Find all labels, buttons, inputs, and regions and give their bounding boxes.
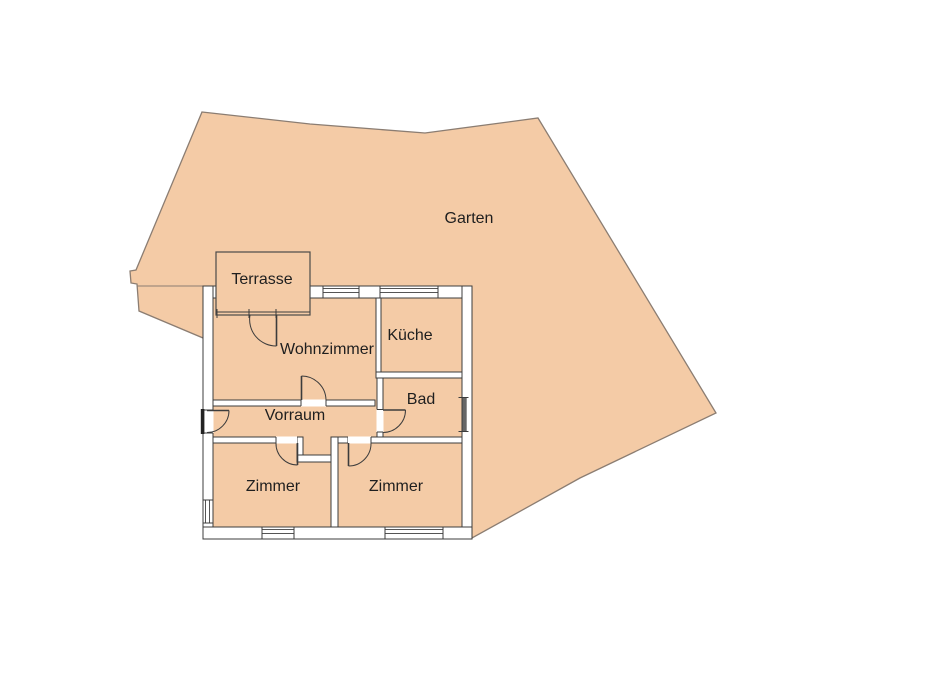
wall-hall-south-c xyxy=(371,437,462,443)
wall-kitchen-west xyxy=(376,298,381,375)
door-opening xyxy=(276,436,297,443)
floorplan-svg: Garten Terrasse Wohnzimmer Küche Bad Vor… xyxy=(0,0,940,677)
wall-kitchen-south xyxy=(376,372,462,378)
garden-label: Garten xyxy=(445,210,494,227)
door-opening xyxy=(376,410,383,433)
wall-rooms-partition xyxy=(331,437,338,527)
room-right-label: Zimmer xyxy=(369,478,424,495)
living-room-label: Wohnzimmer xyxy=(280,341,375,358)
wall-hall-south-a xyxy=(213,437,276,443)
room-left-label: Zimmer xyxy=(246,478,301,495)
hall-label: Vorraum xyxy=(265,407,325,424)
door-threshold xyxy=(201,409,205,434)
window-glazing xyxy=(463,398,467,431)
wall-hall-south-b xyxy=(338,437,348,443)
wall-livingroom-south xyxy=(213,400,375,406)
house xyxy=(201,286,472,539)
floorplan-canvas: Garten Terrasse Wohnzimmer Küche Bad Vor… xyxy=(0,0,940,677)
bath-label: Bad xyxy=(407,391,435,408)
kitchen-label: Küche xyxy=(387,327,432,344)
door-opening xyxy=(301,399,326,406)
terrace-label: Terrasse xyxy=(231,271,292,288)
door-opening xyxy=(348,436,371,443)
